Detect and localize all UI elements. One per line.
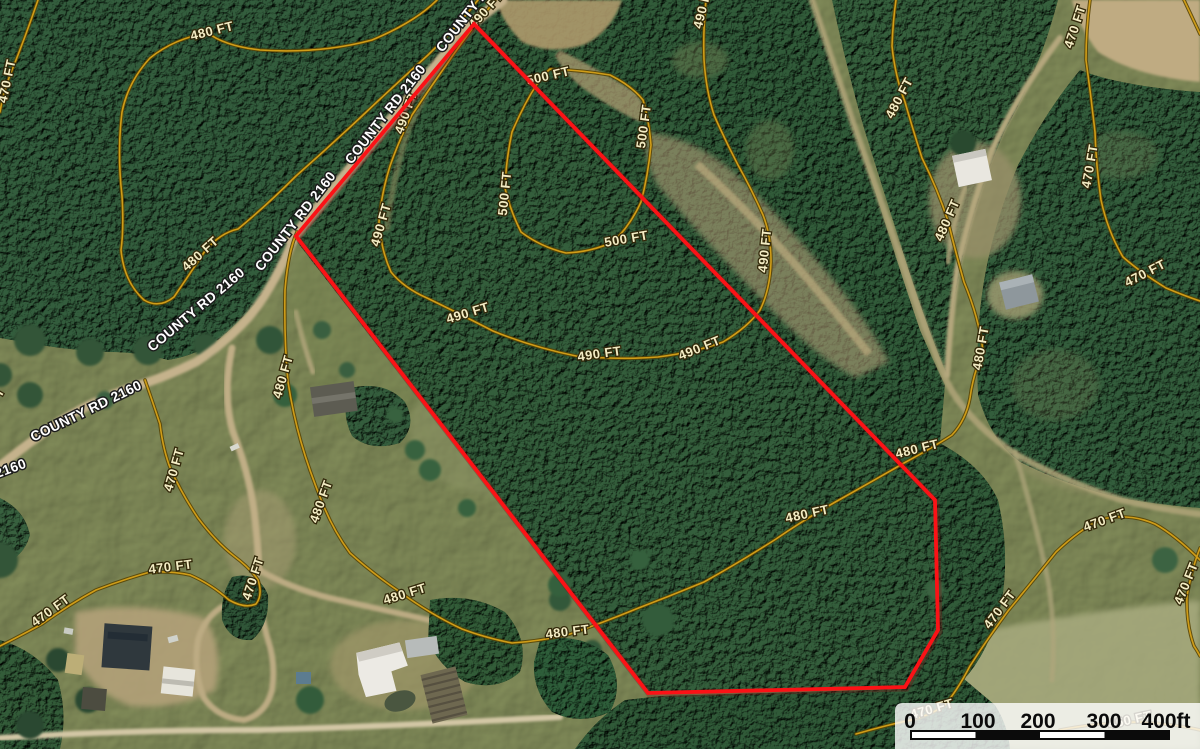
svg-text:200: 200 [1020, 710, 1055, 733]
svg-text:300: 300 [1086, 710, 1121, 733]
svg-text:0: 0 [904, 710, 916, 733]
svg-text:100: 100 [960, 710, 995, 733]
svg-text:400ft: 400ft [1141, 710, 1190, 733]
